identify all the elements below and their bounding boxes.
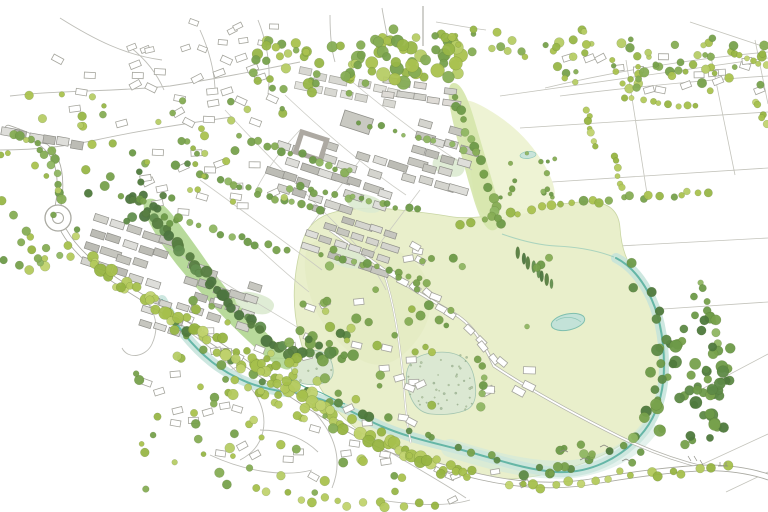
- masterplan-illustration: [0, 0, 768, 512]
- masterplan-svg: [0, 0, 768, 512]
